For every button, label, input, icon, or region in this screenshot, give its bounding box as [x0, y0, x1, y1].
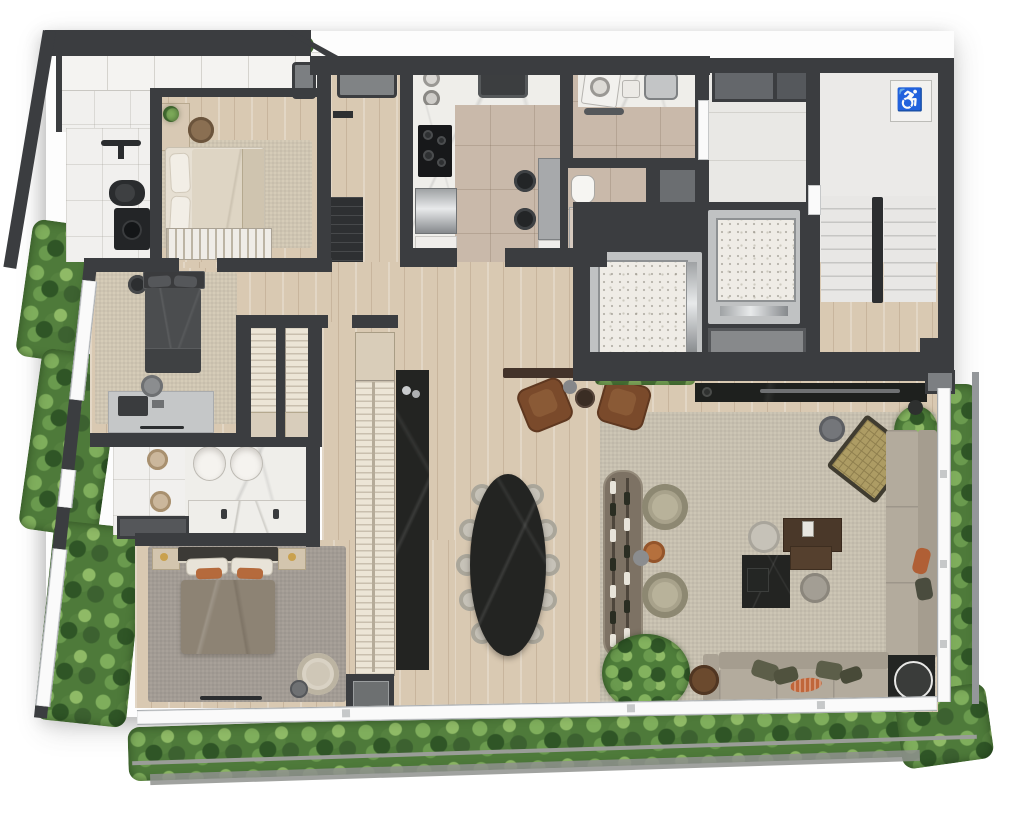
bar-stool-1 [514, 170, 536, 192]
mbath-stool-2 [150, 491, 171, 512]
cooktop-burner-2 [437, 136, 446, 145]
laundry-basket [622, 80, 640, 98]
wall-top-left-inner [56, 52, 62, 132]
wall-closet-north-2 [352, 315, 398, 328]
wall-bedroom2-east [236, 318, 251, 446]
wall-stair-corner-block [920, 338, 940, 372]
wine-bottle-4 [610, 558, 616, 571]
cooktop-burner-4 [437, 158, 446, 167]
bar-espresso-2 [412, 390, 420, 398]
wine-bottle-2 [610, 503, 616, 516]
wall-bath2-east [646, 165, 658, 250]
wall-closet-divider [276, 322, 285, 438]
elevator-2-cab [716, 218, 796, 302]
ironing-board [584, 108, 624, 115]
window-mullion-3 [817, 701, 825, 709]
mbath-faucet-2 [273, 509, 279, 519]
elevator-1-door [687, 262, 697, 354]
wine-bottle-11 [624, 572, 630, 585]
corridor-cabinet [327, 197, 363, 262]
wine-bottle-8 [624, 492, 630, 505]
terrace-rail-right [972, 372, 979, 704]
wall-bed1-east [317, 57, 331, 264]
kitchen-island [538, 158, 562, 240]
bath1-towel-stem [118, 146, 124, 159]
window-mullion-1 [342, 709, 350, 717]
wine-bottle-1 [610, 481, 616, 494]
wall-kitchen-laundry [560, 57, 573, 161]
stair-handrail [872, 197, 883, 303]
wine-bottle-10 [624, 545, 630, 558]
wine-bottle-3 [610, 529, 616, 542]
walkin-shelves [355, 380, 395, 676]
entry-console [503, 368, 580, 378]
mbed-armchair-cushion [306, 662, 330, 686]
mbath-basin-1 [193, 446, 226, 481]
bed1-chair [188, 117, 214, 143]
wall-north-corridor-1 [84, 258, 179, 272]
window-band-right [937, 388, 951, 702]
bath2-basin [571, 175, 595, 204]
mbed-bench-line [200, 696, 262, 700]
window-mullion-r1 [940, 470, 947, 478]
window-mullion-2 [627, 704, 635, 712]
mbath-faucet-1 [221, 509, 227, 519]
sofa-back-vertical [918, 430, 937, 658]
window-mullion-r3 [940, 640, 947, 648]
bed2-desk-item [152, 400, 164, 408]
barrel-chair-1-seat [652, 494, 678, 520]
mbed-lamp-left [160, 553, 168, 561]
wall-top-right [700, 58, 954, 73]
mbath-vanity [188, 500, 307, 535]
wall-bed1-north [150, 88, 320, 97]
coffee-table-round-1 [748, 521, 780, 553]
mbed-side-disc [290, 680, 308, 698]
wall-closet-east [308, 322, 322, 440]
side-table-round-wood [689, 665, 719, 695]
bed1-pillow-1 [169, 153, 191, 194]
elevator-1-cab [598, 260, 688, 360]
bed2-laptop [118, 396, 148, 416]
bar-counter [396, 370, 429, 670]
mbath-stool-1 [147, 449, 168, 470]
pouf-gray [819, 416, 845, 442]
window-mullion-r2 [940, 560, 947, 568]
bed1-bench [166, 228, 272, 260]
door-stairhall [808, 185, 821, 215]
wall-north-corridor-2 [217, 258, 332, 272]
wall-mbath-north [180, 437, 322, 447]
mbed-duvet [181, 580, 275, 654]
wardrobe-cabinets [60, 54, 318, 91]
wall-social-north [573, 352, 954, 381]
tv-console-pot [702, 387, 712, 397]
walkin-cap [355, 332, 395, 382]
wall-bath2-north [560, 158, 696, 168]
walkin-shelves-rail [372, 382, 375, 672]
sofa-seat-vertical [886, 430, 918, 658]
wall-bed1-west [150, 88, 162, 264]
corner-fire-bowl [894, 661, 933, 700]
bar-stool-2 [514, 208, 536, 230]
mbed-pillow-orange-1 [196, 568, 222, 580]
bed2-desk-pen [140, 426, 184, 429]
wall-right-stairs [938, 58, 954, 388]
wall-bath2-west [560, 158, 568, 250]
cooktop-burner-3 [423, 150, 434, 161]
entry-side-table-dark [575, 388, 595, 408]
coffee-table-books [803, 522, 813, 536]
bar-bronze-decor [401, 426, 417, 444]
floor-plan-canvas: ♿ [0, 0, 1024, 822]
wine-bottle-5 [610, 585, 616, 598]
bed2-pillow-1 [148, 275, 172, 288]
stair-flight-left [821, 196, 873, 302]
mbed-pillow-orange-2 [237, 568, 263, 580]
bath1-basin [122, 220, 142, 240]
bed1-vanity-plant [163, 106, 179, 122]
tv-soundbar [760, 389, 900, 393]
wall-kitchen-south-2 [505, 248, 607, 267]
wall-mbath-east [306, 437, 320, 547]
wheelchair-icon: ♿ [896, 86, 924, 114]
bed2-pillow-2 [174, 275, 198, 288]
plant-pot-dark [908, 400, 923, 415]
laundry-sink [644, 72, 678, 100]
sofa-back-horizontal [719, 652, 889, 669]
coffee-table-round-2 [800, 573, 830, 603]
wall-kitchen-west [400, 57, 413, 249]
wine-bottle-9 [624, 518, 630, 531]
foyer-shaft-1 [712, 68, 776, 102]
bed2-foot-throw [145, 348, 201, 373]
foyer-shaft-2 [774, 68, 809, 102]
bar-espresso-1 [402, 386, 411, 395]
elevator-2-door [720, 306, 788, 316]
wall-top-left [45, 30, 311, 56]
mbath-basin-2 [230, 446, 263, 481]
cooktop-burner-1 [423, 130, 433, 140]
bath1-toilet-seat [115, 184, 135, 202]
wall-top-mid [310, 56, 710, 75]
mbed-lamp-right [288, 553, 296, 561]
wall-kitchen-south-1 [400, 248, 457, 267]
wardrobe-room-floor-2 [58, 88, 152, 132]
wall-stairhall-west [806, 58, 820, 372]
coffee-table-tray [747, 568, 769, 592]
bed1-foot-throw [242, 149, 264, 238]
wine-bottle-12 [624, 600, 630, 613]
door-foyer-west [698, 100, 709, 160]
stair-flight-right [884, 196, 936, 302]
bedroom1-door-leaf [333, 111, 353, 118]
kitchen-oven [415, 188, 457, 234]
wall-mbed-north [135, 533, 320, 546]
wine-bottle-6 [610, 611, 616, 624]
coffee-table-wood-2 [790, 546, 832, 570]
entry-side-table-gray [563, 380, 577, 394]
dining-table [470, 474, 546, 656]
barrel-chair-2-seat [652, 582, 678, 608]
side-table-gray-sm [633, 550, 649, 566]
bed2-chair [141, 375, 163, 397]
